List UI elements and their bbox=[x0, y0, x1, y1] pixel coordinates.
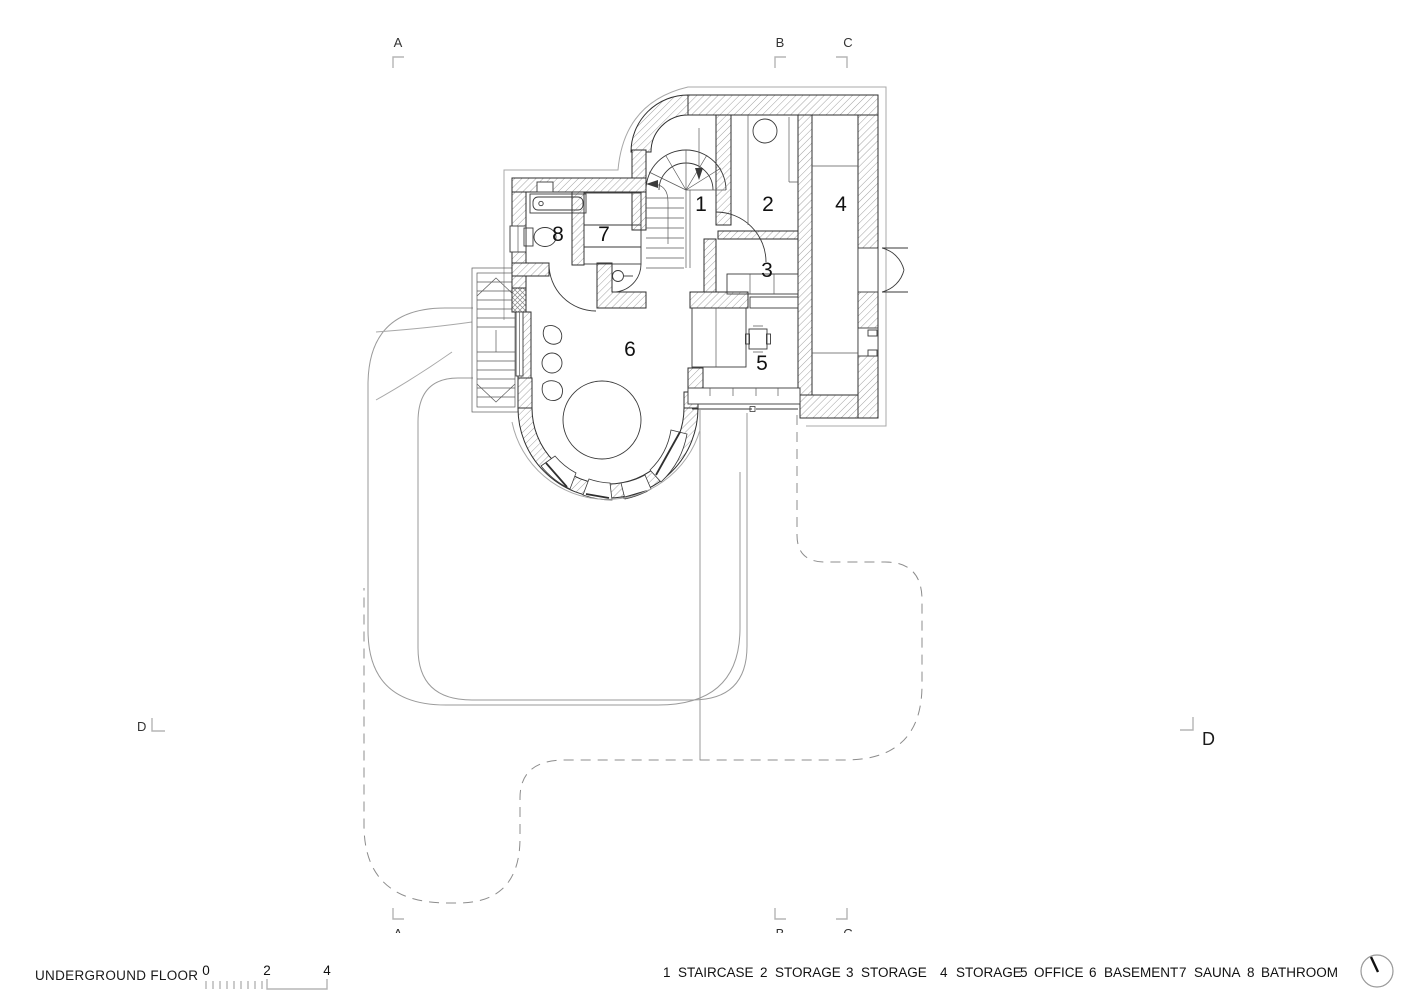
legend-num-8: 8 bbox=[1247, 965, 1255, 980]
stair-winder-steps bbox=[649, 155, 726, 190]
bathtub-drain bbox=[539, 201, 543, 205]
scale-ticks bbox=[206, 981, 262, 989]
section-bracket-d-right bbox=[1180, 717, 1193, 730]
scale-label-2: 2 bbox=[263, 963, 271, 978]
legend-label-5: OFFICE bbox=[1034, 965, 1084, 980]
boulder-3 bbox=[542, 381, 563, 401]
contour-line-1 bbox=[376, 322, 472, 332]
legend-num-2: 2 bbox=[760, 965, 768, 980]
wall-leftblock-top bbox=[512, 178, 646, 192]
room3-shelf-low bbox=[750, 297, 798, 308]
external-stair bbox=[472, 268, 518, 412]
wall-top bbox=[688, 95, 878, 115]
door-opening-room4 bbox=[858, 248, 878, 292]
room-label-3: 3 bbox=[761, 259, 773, 282]
section-marker-d-left: D bbox=[137, 719, 146, 734]
boulder-2 bbox=[542, 353, 562, 373]
north-indicator bbox=[1361, 955, 1393, 987]
legend-num-7: 7 bbox=[1179, 965, 1187, 980]
page-title: UNDERGROUND FLOOR bbox=[35, 968, 198, 983]
sauna-heater bbox=[613, 271, 624, 282]
office-desk bbox=[692, 308, 746, 367]
basement-bay bbox=[512, 408, 700, 500]
legend-label-1: STAIRCASE bbox=[678, 965, 754, 980]
wall-room2-room4 bbox=[798, 115, 812, 395]
basement-round-table bbox=[563, 381, 641, 459]
section-bracket-a-bottom bbox=[393, 908, 404, 919]
legend-num-5: 5 bbox=[1020, 965, 1028, 980]
scale-segment bbox=[267, 979, 327, 989]
legend-num-1: 1 bbox=[663, 965, 671, 980]
room-label-6: 6 bbox=[624, 338, 636, 361]
footer: UNDERGROUND FLOOR 0 2 4 1 STAIRCASE 2 ST… bbox=[35, 955, 1393, 989]
legend-num-4: 4 bbox=[940, 965, 948, 980]
room-label-1: 1 bbox=[695, 193, 707, 216]
section-bracket-b-top bbox=[775, 57, 786, 68]
wall-room8-room7 bbox=[572, 192, 584, 265]
legend-num-3: 3 bbox=[846, 965, 854, 980]
wall-leftblock-left-cross bbox=[512, 288, 526, 312]
stair-chevron-top bbox=[477, 278, 515, 296]
window-room4-frame-bottom bbox=[868, 350, 877, 356]
section-bracket-a-top bbox=[393, 57, 404, 68]
north-needle-icon bbox=[1371, 957, 1378, 972]
arrow-left-icon bbox=[646, 180, 658, 188]
scale-label-4: 4 bbox=[323, 963, 331, 978]
floor-plan-canvas: 1 2 3 4 5 6 7 8 A B C D D A B C UNDERGRO… bbox=[0, 0, 1415, 1000]
building-walls bbox=[512, 95, 878, 418]
section-marker-c-top: C bbox=[843, 35, 852, 50]
room-label-5: 5 bbox=[756, 352, 768, 375]
wall-room8-bottom bbox=[512, 263, 549, 276]
room-label-8: 8 bbox=[552, 223, 564, 246]
lightwell-outline bbox=[472, 268, 518, 412]
room-label-4: 4 bbox=[835, 193, 847, 216]
legend-label-7: SAUNA bbox=[1194, 965, 1241, 980]
section-bracket-d-left bbox=[152, 718, 165, 731]
section-bracket-c-bottom bbox=[836, 908, 847, 919]
section-marker-b-top: B bbox=[776, 35, 785, 50]
room-label-2: 2 bbox=[762, 193, 774, 216]
stair-divider bbox=[686, 150, 690, 268]
legend-num-6: 6 bbox=[1089, 965, 1097, 980]
terrace-outline-outer bbox=[368, 308, 740, 705]
stair-treads-top bbox=[477, 282, 515, 327]
stair-treads-bottom bbox=[477, 352, 515, 397]
wall-room7-bottom bbox=[597, 263, 646, 308]
section-marker-d-right: D bbox=[1202, 729, 1215, 749]
section-bracket-b-bottom bbox=[775, 908, 786, 919]
legend-label-2: STORAGE bbox=[775, 965, 841, 980]
sheet-crop-mask bbox=[380, 933, 870, 953]
stair-chevron-bottom bbox=[477, 384, 515, 402]
stair-steps-left-flight bbox=[646, 198, 684, 268]
scale-label-0: 0 bbox=[202, 963, 210, 978]
section-bracket-c-top bbox=[836, 57, 847, 68]
door-arc-bathroom bbox=[549, 264, 596, 311]
contour-line-2 bbox=[376, 352, 452, 400]
stair-walkline-turn bbox=[652, 184, 668, 244]
terrace-outline-inner bbox=[418, 378, 747, 700]
section-marker-a-top: A bbox=[394, 35, 403, 50]
legend-label-6: BASEMENT bbox=[1104, 965, 1178, 980]
wall-stair-curve bbox=[631, 95, 688, 152]
legend: 1 STAIRCASE 2 STORAGE 3 STORAGE 4 STORAG… bbox=[663, 965, 1338, 980]
window-room4-frame-top bbox=[868, 330, 877, 336]
window-band-room5 bbox=[688, 388, 800, 404]
arrow-down-icon bbox=[695, 168, 703, 180]
room-label-7: 7 bbox=[598, 223, 610, 246]
double-door-leaves bbox=[882, 248, 904, 292]
legend-label-4: STORAGE bbox=[956, 965, 1022, 980]
scale-bar: 0 2 4 bbox=[202, 963, 331, 989]
boiler-circle bbox=[753, 119, 777, 143]
legend-label-3: STORAGE bbox=[861, 965, 927, 980]
door-arc-sauna bbox=[613, 264, 641, 292]
legend-label-8: BATHROOM bbox=[1261, 965, 1338, 980]
office-chair bbox=[749, 329, 767, 349]
boulder-1 bbox=[543, 325, 562, 344]
wall-bottom-right bbox=[800, 395, 858, 418]
niche-top-wall bbox=[537, 182, 553, 192]
wall-bay-left bbox=[518, 378, 532, 408]
office-chair-back bbox=[753, 326, 763, 352]
